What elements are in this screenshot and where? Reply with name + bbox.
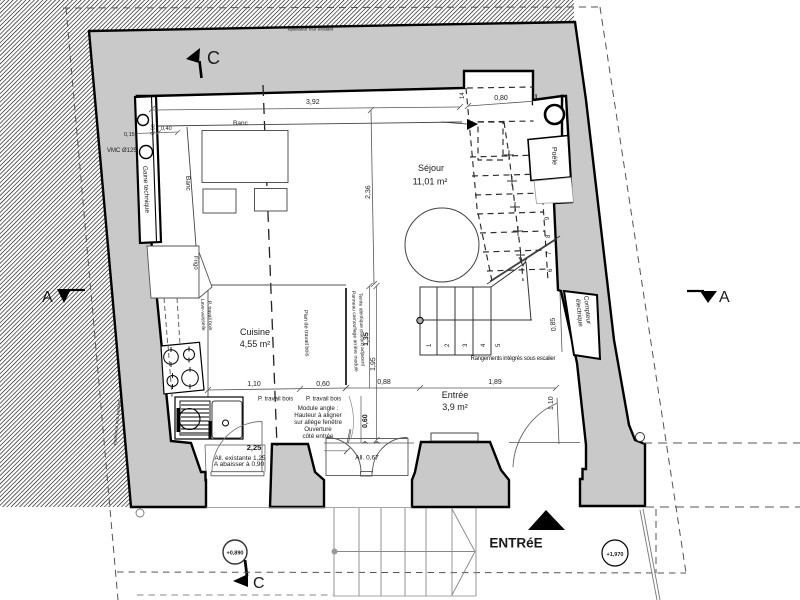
svg-text:Poêle: Poêle (550, 147, 558, 165)
svg-text:A: A (42, 289, 53, 306)
svg-text:Ouverture: Ouverture (304, 426, 332, 433)
svg-text:Banc: Banc (233, 120, 249, 127)
svg-text:0,15: 0,15 (124, 132, 135, 138)
svg-text:3,92: 3,92 (306, 99, 320, 106)
svg-text:0,88: 0,88 (377, 379, 391, 386)
svg-text:1,10: 1,10 (247, 381, 261, 388)
svg-text:P. travail bois: P. travail bois (258, 397, 293, 403)
svg-text:épaisseur mur existant: épaisseur mur existant (288, 27, 334, 32)
svg-text:0,60: 0,60 (150, 124, 157, 135)
svg-text:Lave-vaisselle: Lave-vaisselle (199, 299, 206, 331)
svg-text:1,10: 1,10 (548, 396, 555, 410)
svg-text:Séjour: Séjour (418, 163, 444, 173)
svg-text:Hauteur à aligner: Hauteur à aligner (294, 412, 341, 419)
svg-text:Module angle :: Module angle : (298, 405, 339, 412)
svg-text:A: A (719, 289, 730, 306)
svg-text:Banc: Banc (184, 176, 192, 192)
svg-text:0,80: 0,80 (494, 95, 508, 102)
svg-text:0,40: 0,40 (161, 126, 172, 132)
svg-text:Rangements intégrés sous escal: Rangements intégrés sous escalier (471, 356, 556, 362)
svg-text:sur allège fenêtre: sur allège fenêtre (294, 419, 342, 426)
svg-text:côté entrée: côté entrée (303, 433, 335, 440)
svg-text:VMC Ø125: VMC Ø125 (107, 148, 137, 154)
svg-text:P. travail bois: P. travail bois (206, 301, 213, 331)
svg-text:Entrée: Entrée (442, 390, 469, 400)
svg-text:2,36: 2,36 (365, 185, 372, 199)
svg-text:0,85: 0,85 (550, 317, 558, 331)
svg-text:A abaisser à 0,90: A abaisser à 0,90 (214, 461, 265, 468)
svg-text:Frigo: Frigo (192, 256, 198, 271)
svg-text:3,9 m²: 3,9 m² (442, 402, 468, 412)
svg-text:Cuisine: Cuisine (240, 327, 270, 337)
svg-text:C: C (253, 575, 265, 592)
svg-text:14: 14 (460, 92, 466, 99)
svg-text:0,60: 0,60 (316, 381, 330, 388)
svg-text:0,60: 0,60 (362, 414, 369, 428)
svg-text:C: C (207, 48, 220, 68)
svg-text:All. 0,67: All. 0,67 (355, 455, 379, 462)
svg-text:P. travail bois: P. travail bois (306, 397, 341, 403)
svg-text:2,25: 2,25 (247, 443, 262, 452)
svg-text:1,89: 1,89 (488, 379, 502, 386)
svg-text:11,01 m²: 11,01 m² (413, 177, 448, 187)
svg-text:+0,890: +0,890 (227, 551, 244, 557)
svg-text:4,55 m²: 4,55 m² (240, 339, 271, 349)
svg-text:ENTRéE: ENTRéE (489, 536, 542, 551)
svg-text:+1,970: +1,970 (607, 552, 624, 558)
